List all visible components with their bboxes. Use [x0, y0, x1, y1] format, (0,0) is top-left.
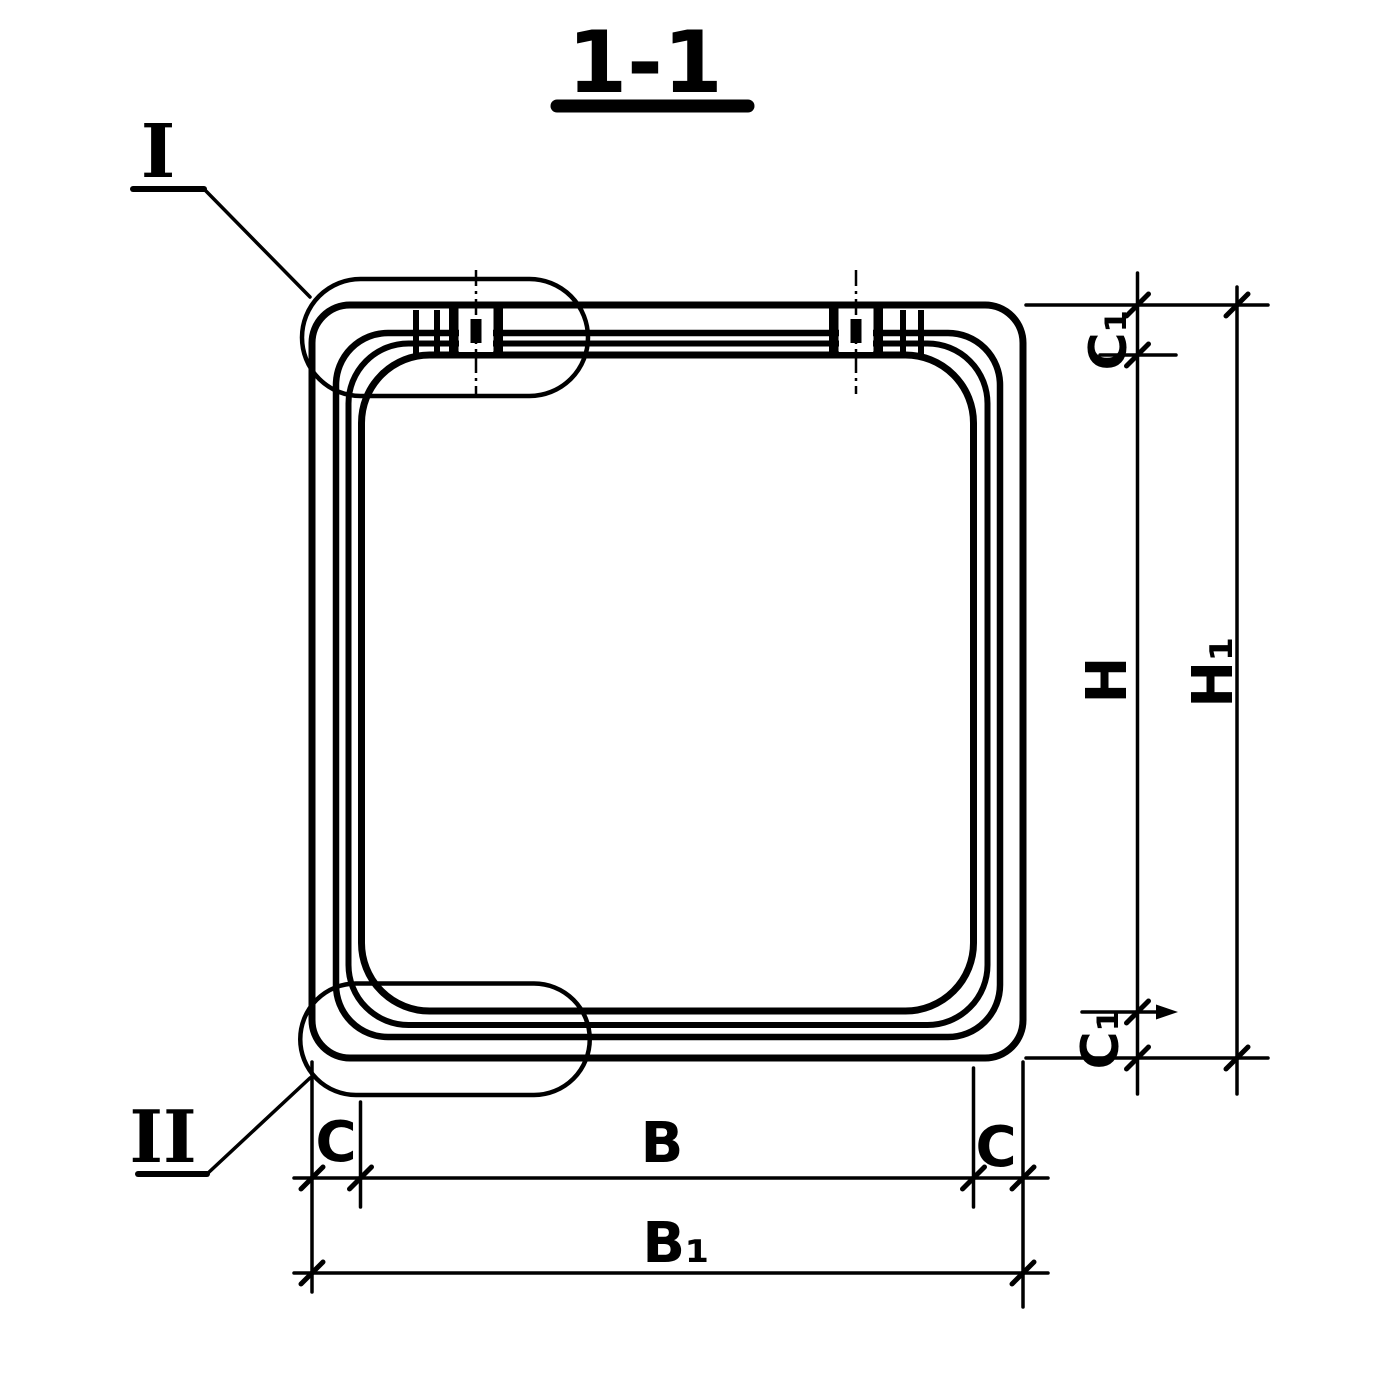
section-title: 1-1: [567, 13, 722, 113]
detail-boundaries: [300, 279, 590, 1095]
joint-bar-right: [494, 306, 504, 356]
structure-contours: [312, 305, 1023, 1058]
detail-ii-leader: [207, 1078, 310, 1174]
dim-label-c1-bottom: C₁: [1071, 1009, 1131, 1070]
detail-i-leader: [204, 189, 310, 297]
inner-contour-3: [362, 355, 974, 1011]
dim-label-b1: B₁: [642, 1211, 709, 1276]
detail-ii-label: II: [129, 1094, 196, 1179]
outer-contour: [312, 305, 1023, 1058]
dim-label-h: H: [1075, 657, 1140, 704]
detail-callouts: [133, 189, 310, 1174]
culvert-section-drawing: 1-1 I II C B C B₁ C₁ H H₁ C₁: [0, 0, 1374, 1379]
detail-i-label: I: [141, 109, 176, 195]
dim-label-c1-top: C₁: [1079, 310, 1139, 371]
dim-label-c-right: C: [975, 1115, 1016, 1180]
detail-circle-i: [302, 279, 588, 396]
dim-label-c-left: C: [315, 1110, 356, 1175]
dim-label-h1: H₁: [1181, 636, 1246, 707]
inner-contour-1: [336, 333, 1000, 1037]
joint-bar-right: [874, 306, 884, 356]
drawing-sheet: 1-1 I II C B C B₁ C₁ H H₁ C₁: [0, 0, 1374, 1379]
joint-bar-left: [449, 306, 459, 356]
inner-contour-2: [349, 344, 988, 1026]
dim-label-b: B: [641, 1111, 684, 1176]
section-title-group: 1-1: [557, 13, 748, 113]
joint-bar-left: [829, 306, 839, 356]
arrowhead: [1156, 1005, 1178, 1020]
